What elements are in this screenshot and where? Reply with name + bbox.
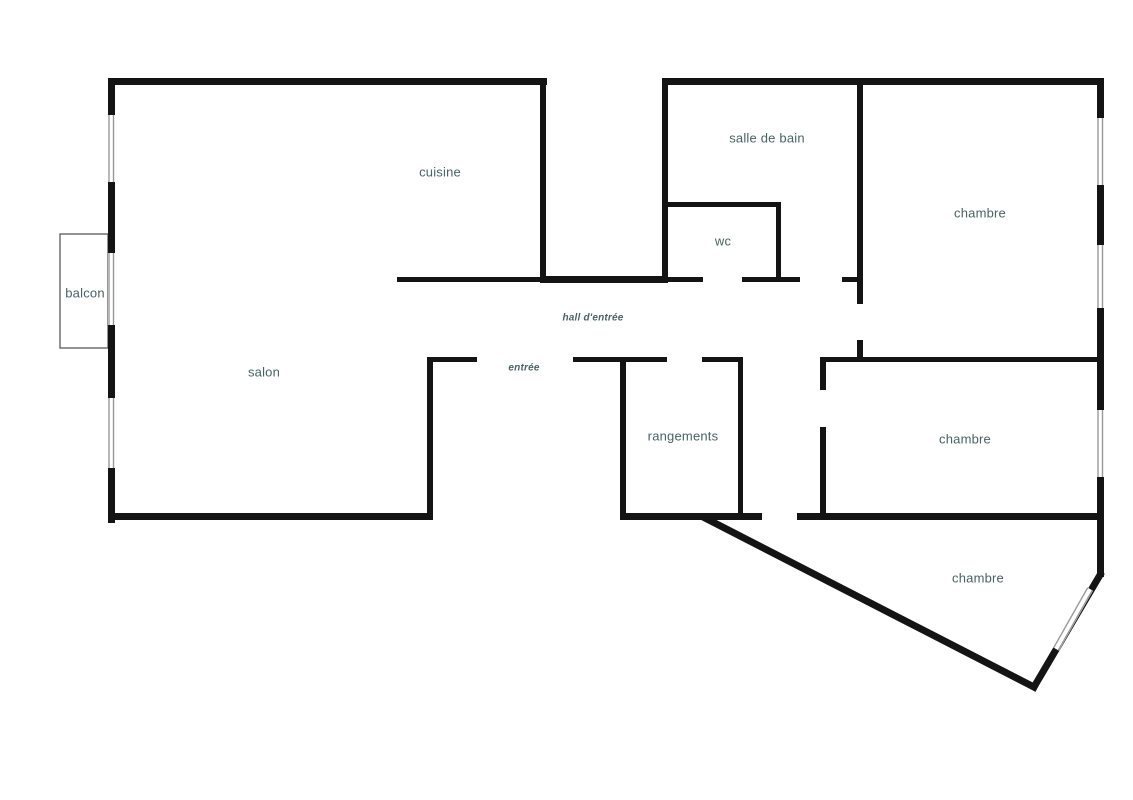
wall-hall-south-b bbox=[702, 357, 743, 362]
wall-rangements-left bbox=[620, 357, 626, 520]
wall-diagonal-long bbox=[705, 518, 1034, 687]
wall-salon-right bbox=[427, 357, 433, 520]
window-right-2 bbox=[1097, 245, 1104, 308]
wall-entree-left bbox=[427, 357, 477, 362]
room-label-chambre-haut: chambre bbox=[954, 206, 1006, 221]
room-label-salon: salon bbox=[248, 365, 280, 380]
room-label-wc: wc bbox=[715, 234, 731, 249]
wall-top-right-block bbox=[663, 78, 1104, 85]
room-label-chambre-milieu: chambre bbox=[939, 432, 991, 447]
outer-walls bbox=[108, 78, 1104, 577]
room-label-hall-entree: hall d'entrée bbox=[562, 313, 623, 324]
room-label-salle-de-bain: salle de bain bbox=[729, 131, 805, 146]
wall-hall-top-d bbox=[742, 277, 800, 282]
wall-bottom-right bbox=[797, 513, 1104, 520]
wall-hall-top-b bbox=[540, 276, 668, 283]
wall-chambre-milieu-left-a bbox=[820, 357, 826, 390]
floorplan-drawing bbox=[0, 0, 1133, 800]
window-left-1 bbox=[108, 115, 115, 182]
wall-rangements-right bbox=[738, 357, 743, 520]
wall-cuisine-right bbox=[540, 78, 546, 282]
diagonal-walls bbox=[705, 518, 1100, 687]
wall-hall-top-a bbox=[397, 277, 543, 282]
wall-chambre-milieu-top bbox=[820, 357, 1104, 362]
wall-wc-top bbox=[662, 202, 781, 207]
wall-chambre-milieu-left-b bbox=[820, 427, 826, 520]
floorplan-canvas: cuisine salle de bain chambre wc balcon … bbox=[0, 0, 1133, 800]
wall-sdb-left bbox=[662, 78, 668, 282]
wall-top-left-block bbox=[108, 78, 547, 85]
window-right-1 bbox=[1097, 118, 1104, 185]
window-left-2 bbox=[108, 398, 115, 468]
room-label-rangements: rangements bbox=[648, 429, 719, 444]
room-label-entree: entrée bbox=[508, 363, 539, 374]
window-diagonal bbox=[1054, 588, 1093, 651]
wall-salon-bottom bbox=[108, 513, 432, 520]
wall-hall-top-c bbox=[668, 277, 703, 282]
window-right-3 bbox=[1097, 410, 1104, 477]
wall-sdb-chambre-divider bbox=[857, 78, 863, 304]
wall-wc-right bbox=[776, 202, 781, 282]
room-label-chambre-bas: chambre bbox=[952, 571, 1004, 586]
window-balcon-door bbox=[108, 253, 115, 325]
room-label-balcon: balcon bbox=[65, 286, 105, 301]
room-label-cuisine: cuisine bbox=[419, 165, 461, 180]
